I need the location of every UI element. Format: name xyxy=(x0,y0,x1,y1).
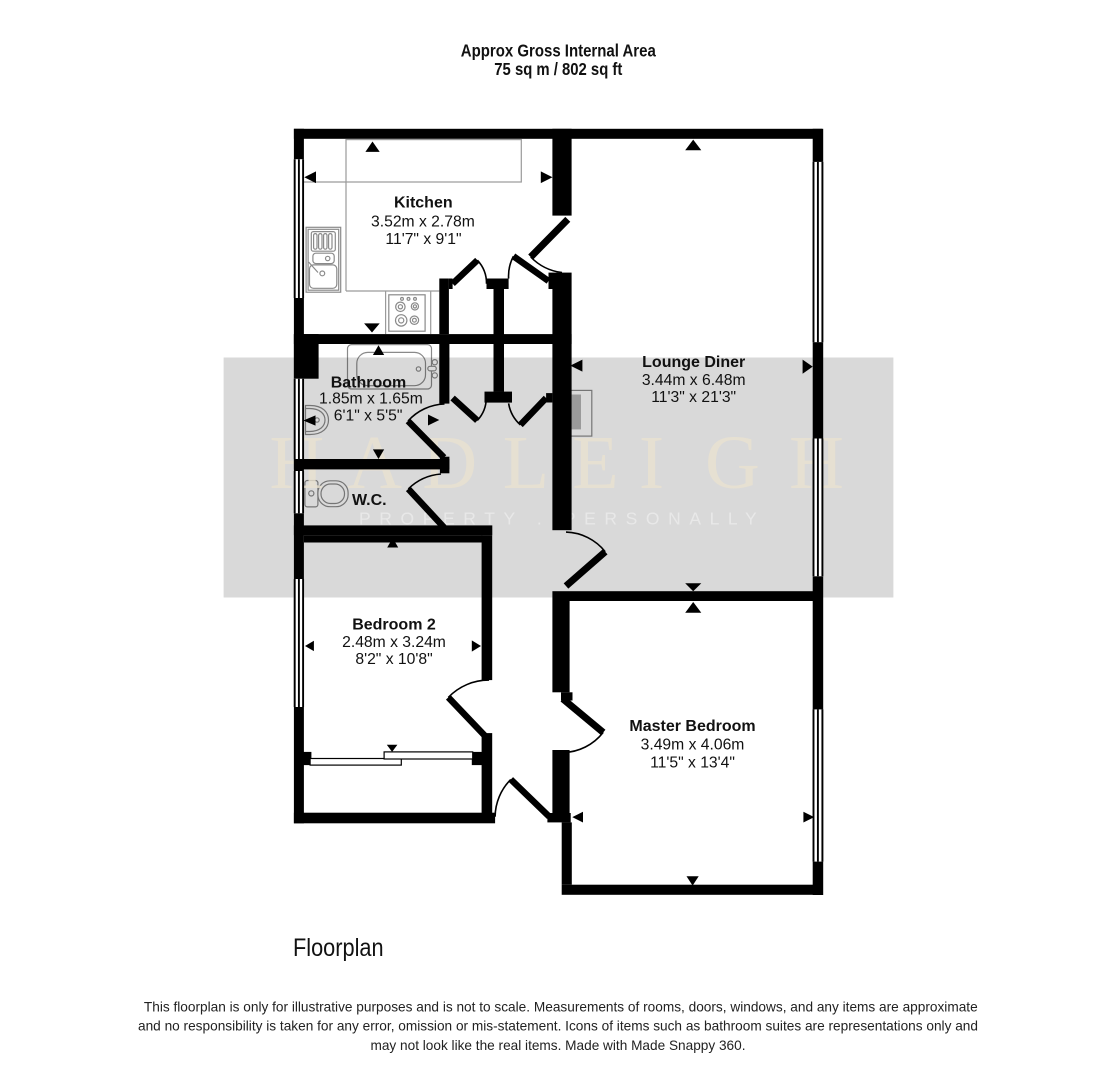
svg-text:11'5" x 13'4": 11'5" x 13'4" xyxy=(650,755,735,772)
svg-text:Floorplan: Floorplan xyxy=(293,934,384,962)
svg-text:1.85m x 1.65m: 1.85m x 1.65m xyxy=(319,391,423,408)
svg-text:3.49m x 4.06m: 3.49m x 4.06m xyxy=(641,737,745,754)
svg-text:This floorplan is only for ill: This floorplan is only for illustrative … xyxy=(144,998,978,1014)
svg-text:3.44m x 6.48m: 3.44m x 6.48m xyxy=(642,372,746,389)
svg-text:and no responsibility is taken: and no responsibility is taken for any e… xyxy=(138,1018,978,1034)
svg-text:Bathroom: Bathroom xyxy=(331,374,407,391)
svg-text:Master Bedroom: Master Bedroom xyxy=(629,718,755,735)
svg-text:Approx Gross Internal Area: Approx Gross Internal Area xyxy=(461,41,656,61)
svg-text:Lounge Diner: Lounge Diner xyxy=(642,354,745,371)
svg-text:2.48m x 3.24m: 2.48m x 3.24m xyxy=(342,634,446,651)
svg-text:Bedroom 2: Bedroom 2 xyxy=(352,617,436,634)
svg-text:may not look like the real ite: may not look like the real items. Made w… xyxy=(371,1037,746,1053)
svg-text:6'1" x 5'5": 6'1" x 5'5" xyxy=(334,407,403,424)
svg-text:75 sq m / 802 sq ft: 75 sq m / 802 sq ft xyxy=(494,59,622,79)
svg-text:11'3" x 21'3": 11'3" x 21'3" xyxy=(651,389,736,406)
svg-text:8'2" x 10'8": 8'2" x 10'8" xyxy=(355,651,432,668)
svg-text:Kitchen: Kitchen xyxy=(394,195,453,212)
svg-text:3.52m x 2.78m: 3.52m x 2.78m xyxy=(371,213,475,230)
svg-text:W.C.: W.C. xyxy=(352,492,387,509)
svg-text:11'7" x 9'1": 11'7" x 9'1" xyxy=(385,231,461,248)
